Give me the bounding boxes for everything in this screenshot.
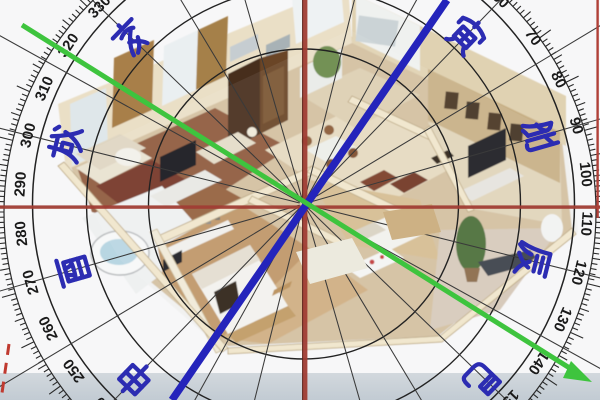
- svg-text:290: 290: [11, 171, 30, 197]
- svg-text:110: 110: [577, 211, 596, 236]
- svg-text:280: 280: [12, 220, 32, 247]
- svg-text:100: 100: [576, 161, 596, 188]
